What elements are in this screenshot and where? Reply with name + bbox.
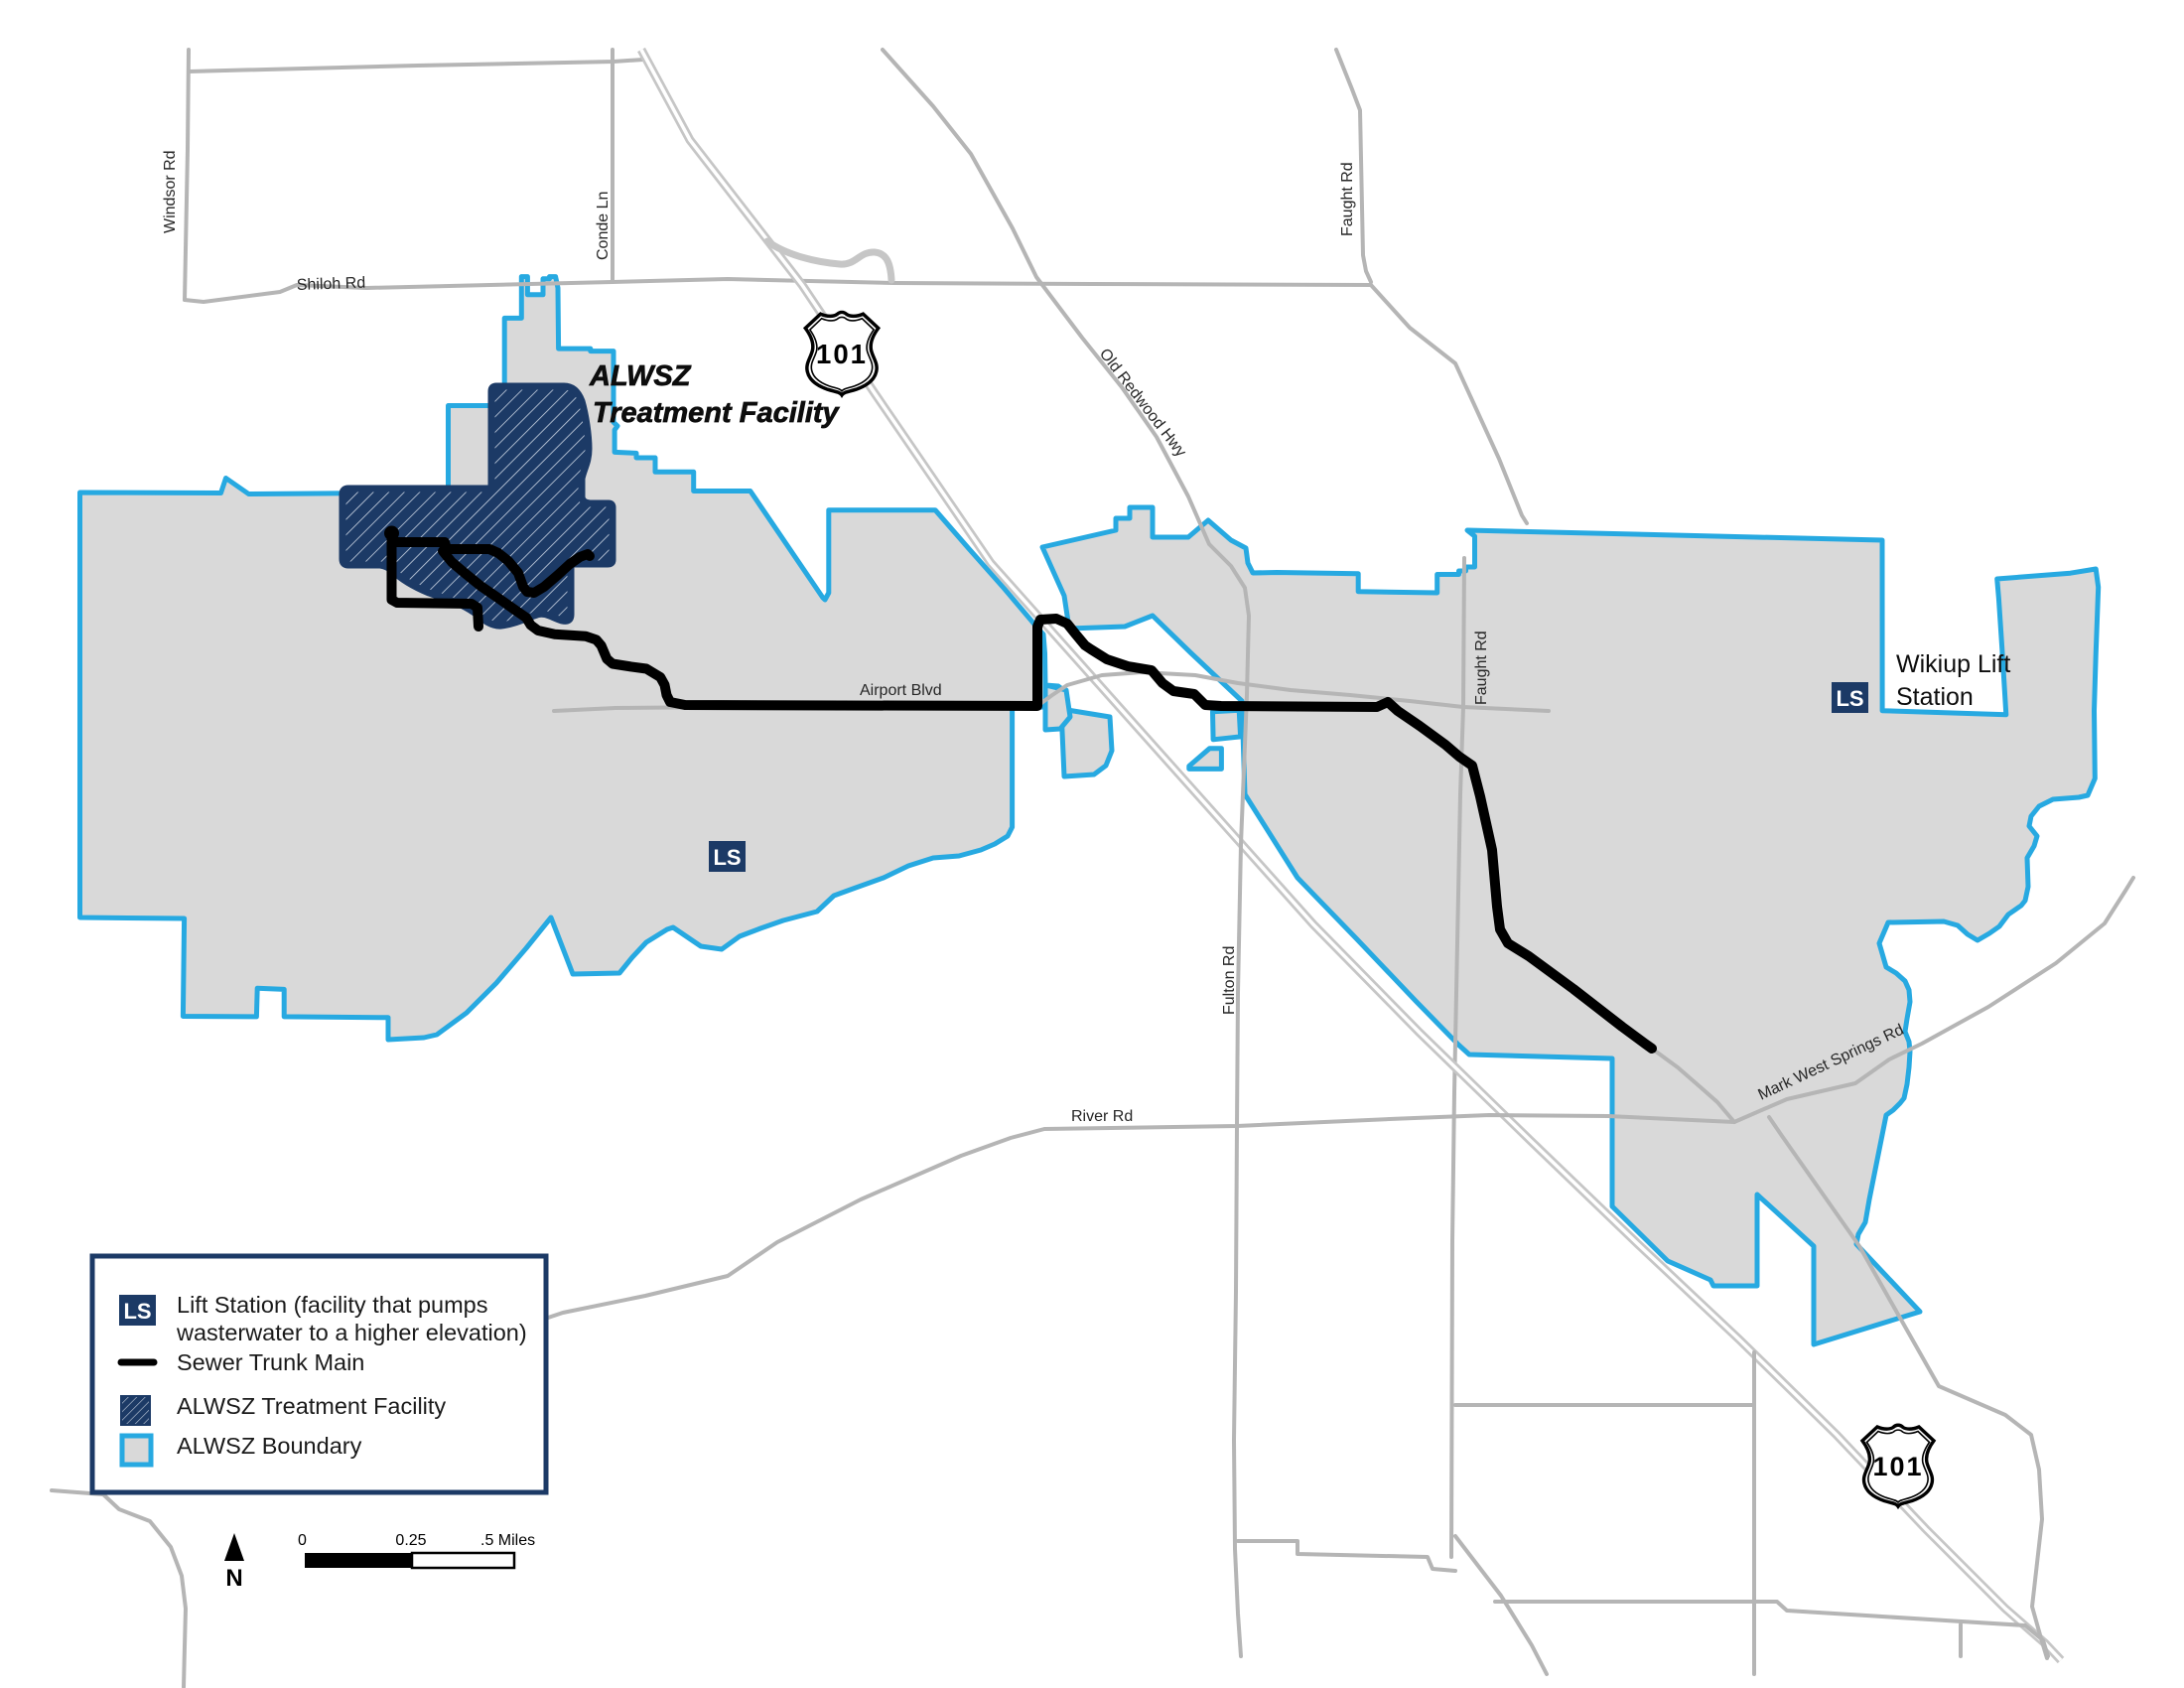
svg-text:ALWSZ: ALWSZ <box>589 360 692 392</box>
svg-text:Treatment Facility: Treatment Facility <box>593 397 841 429</box>
svg-text:Sewer Trunk Main: Sewer Trunk Main <box>177 1349 364 1375</box>
svg-text:Conde Ln: Conde Ln <box>595 192 612 260</box>
svg-text:Faught Rd: Faught Rd <box>1339 162 1356 236</box>
svg-text:101: 101 <box>1872 1452 1923 1481</box>
svg-text:Wikiup Lift: Wikiup Lift <box>1896 650 2010 678</box>
svg-text:Shiloh Rd: Shiloh Rd <box>297 275 366 294</box>
svg-text:101: 101 <box>816 339 868 369</box>
svg-text:LS: LS <box>123 1299 151 1324</box>
svg-text:Faught Rd: Faught Rd <box>1473 631 1490 705</box>
svg-text:Lift Station (facility that pu: Lift Station (facility that pumps <box>177 1292 487 1318</box>
svg-text:LS: LS <box>1836 686 1863 711</box>
svg-text:0.25: 0.25 <box>395 1532 426 1549</box>
svg-text:Station: Station <box>1896 683 1974 711</box>
svg-text:Airport Blvd: Airport Blvd <box>860 682 942 699</box>
svg-text:ALWSZ Boundary: ALWSZ Boundary <box>177 1433 362 1459</box>
svg-text:wasterwater to a higher elevat: wasterwater to a higher elevation) <box>176 1320 527 1345</box>
svg-text:Windsor Rd: Windsor Rd <box>162 150 179 233</box>
svg-text:Fulton Rd: Fulton Rd <box>1221 946 1238 1015</box>
svg-text:LS: LS <box>713 845 741 870</box>
svg-text:N: N <box>225 1565 242 1592</box>
svg-text:ALWSZ Treatment Facility: ALWSZ Treatment Facility <box>177 1393 446 1419</box>
svg-text:River Rd: River Rd <box>1071 1108 1133 1125</box>
svg-text:0: 0 <box>298 1532 307 1549</box>
svg-text:.5 Miles: .5 Miles <box>480 1532 535 1549</box>
